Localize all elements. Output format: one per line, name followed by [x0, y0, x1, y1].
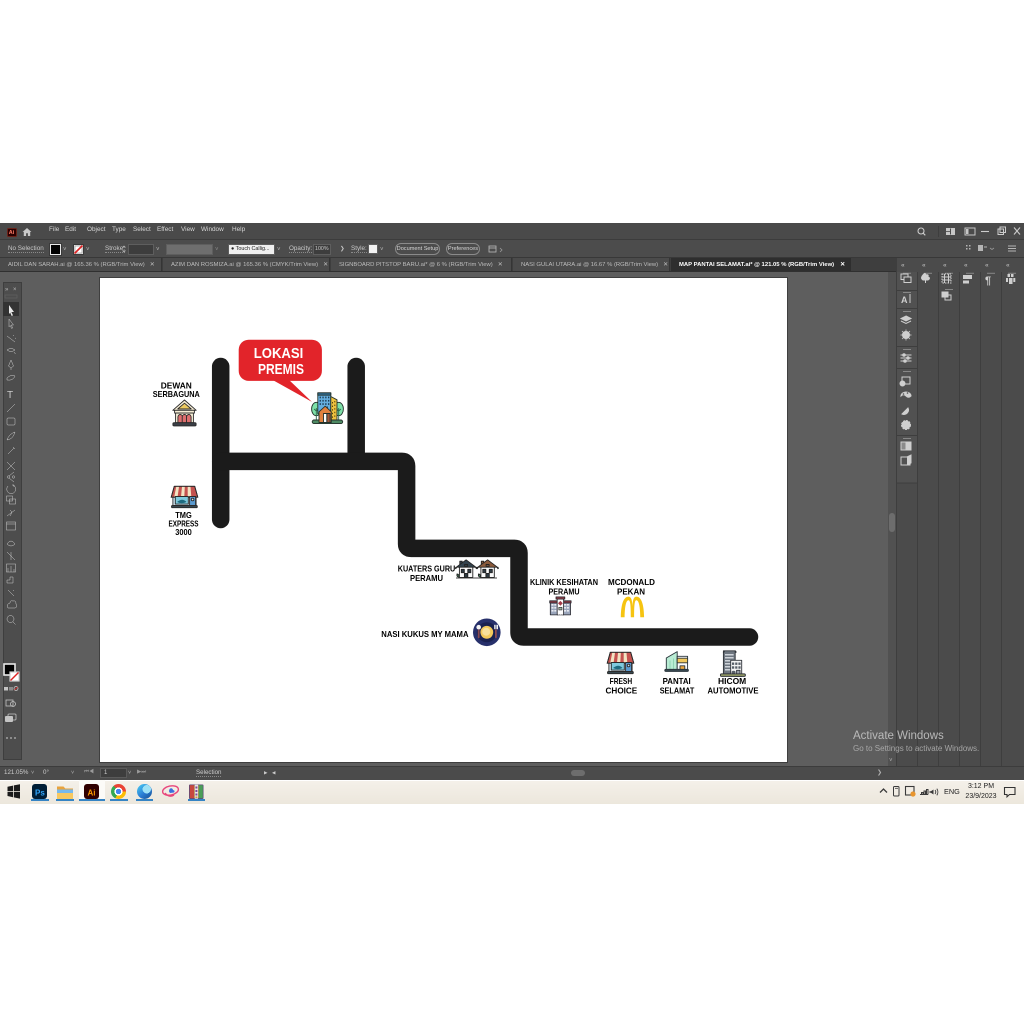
svg-text:PERAMU: PERAMU [549, 587, 580, 596]
svg-text:«: « [1006, 262, 1010, 269]
svg-text:«: « [922, 262, 926, 269]
svg-text:«: « [943, 262, 947, 269]
svg-text:NASI KUKUS MY MAMA: NASI KUKUS MY MAMA [381, 630, 468, 639]
svg-text:PREMIS: PREMIS [258, 361, 304, 378]
svg-text:KLINIK KESIHATAN: KLINIK KESIHATAN [530, 578, 598, 587]
svg-text:«: « [964, 262, 968, 269]
svg-text:»: » [5, 287, 9, 293]
svg-text:MCDONALD: MCDONALD [608, 578, 655, 587]
svg-text:T: T [7, 390, 13, 401]
svg-text:¶: ¶ [985, 275, 991, 287]
svg-text:LOKASI: LOKASI [254, 345, 304, 362]
svg-text:KUATERS GURU: KUATERS GURU [398, 565, 456, 574]
svg-text:Ai: Ai [88, 789, 96, 798]
svg-text:3000: 3000 [175, 528, 192, 537]
svg-text:Ps: Ps [35, 789, 45, 798]
svg-text:×: × [13, 287, 17, 293]
svg-text:SELAMAT: SELAMAT [660, 687, 695, 696]
svg-text:HICOM: HICOM [718, 677, 746, 686]
svg-text:PERAMU: PERAMU [410, 574, 443, 583]
svg-text:PANTAI: PANTAI [663, 677, 691, 686]
svg-text:A: A [901, 295, 908, 305]
svg-text:AUTOMOTIVE: AUTOMOTIVE [708, 687, 760, 696]
svg-text:CHOICE: CHOICE [606, 687, 638, 696]
svg-text:«: « [985, 262, 989, 269]
svg-text:FRESH: FRESH [610, 677, 633, 686]
svg-text:«: « [901, 262, 905, 269]
svg-text:SERBAGUNA: SERBAGUNA [153, 390, 200, 399]
svg-text:PEKAN: PEKAN [617, 587, 645, 596]
